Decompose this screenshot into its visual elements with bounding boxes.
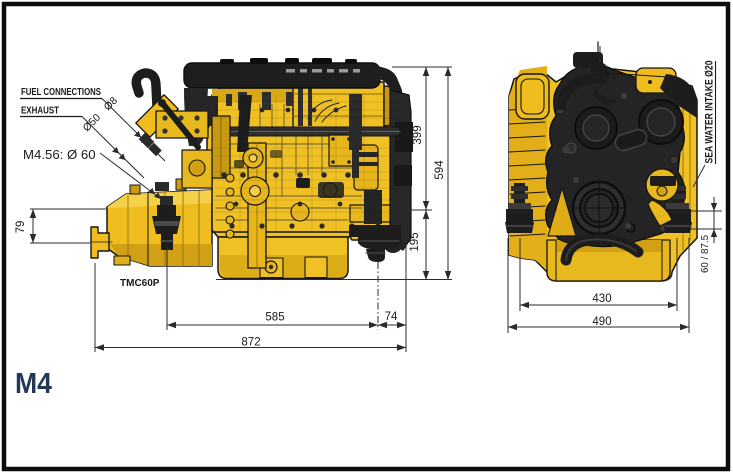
svg-text:872: 872	[241, 337, 260, 349]
svg-text:EXHAUST: EXHAUST	[21, 105, 59, 117]
svg-text:195: 195	[409, 232, 421, 251]
svg-text:60 / 87.5: 60 / 87.5	[699, 235, 711, 273]
svg-text:TMC60P: TMC60P	[120, 278, 160, 289]
svg-text:585: 585	[265, 312, 284, 324]
svg-text:594: 594	[434, 160, 446, 180]
svg-text:FUEL CONNECTIONS: FUEL CONNECTIONS	[21, 86, 101, 98]
svg-text:74: 74	[385, 311, 398, 323]
svg-text:430: 430	[592, 293, 611, 305]
svg-text:SEA WATER INTAKE Ø20: SEA WATER INTAKE Ø20	[704, 61, 716, 164]
svg-text:79: 79	[15, 221, 27, 234]
svg-text:M4.56: Ø 60: M4.56: Ø 60	[23, 147, 96, 162]
svg-text:M4: M4	[15, 368, 52, 400]
svg-text:399: 399	[412, 125, 424, 144]
svg-text:490: 490	[592, 316, 611, 328]
